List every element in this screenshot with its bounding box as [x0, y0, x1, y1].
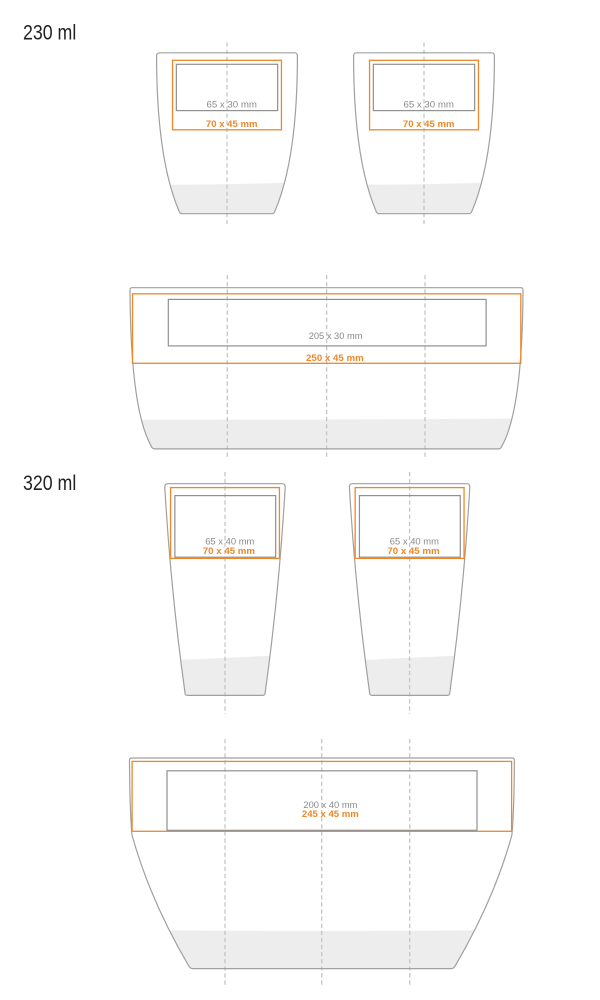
svg-text:250 x 45 mm: 250 x 45 mm — [306, 353, 364, 364]
svg-text:70 x 45 mm: 70 x 45 mm — [206, 119, 258, 130]
svg-text:245 x 45 mm: 245 x 45 mm — [302, 809, 359, 820]
svg-text:320 ml: 320 ml — [23, 472, 76, 495]
svg-text:230 ml: 230 ml — [23, 22, 76, 45]
svg-text:65 x 30 mm: 65 x 30 mm — [207, 99, 257, 110]
svg-text:70 x 45 mm: 70 x 45 mm — [203, 546, 255, 557]
svg-text:205 x 30 mm: 205 x 30 mm — [309, 331, 363, 342]
